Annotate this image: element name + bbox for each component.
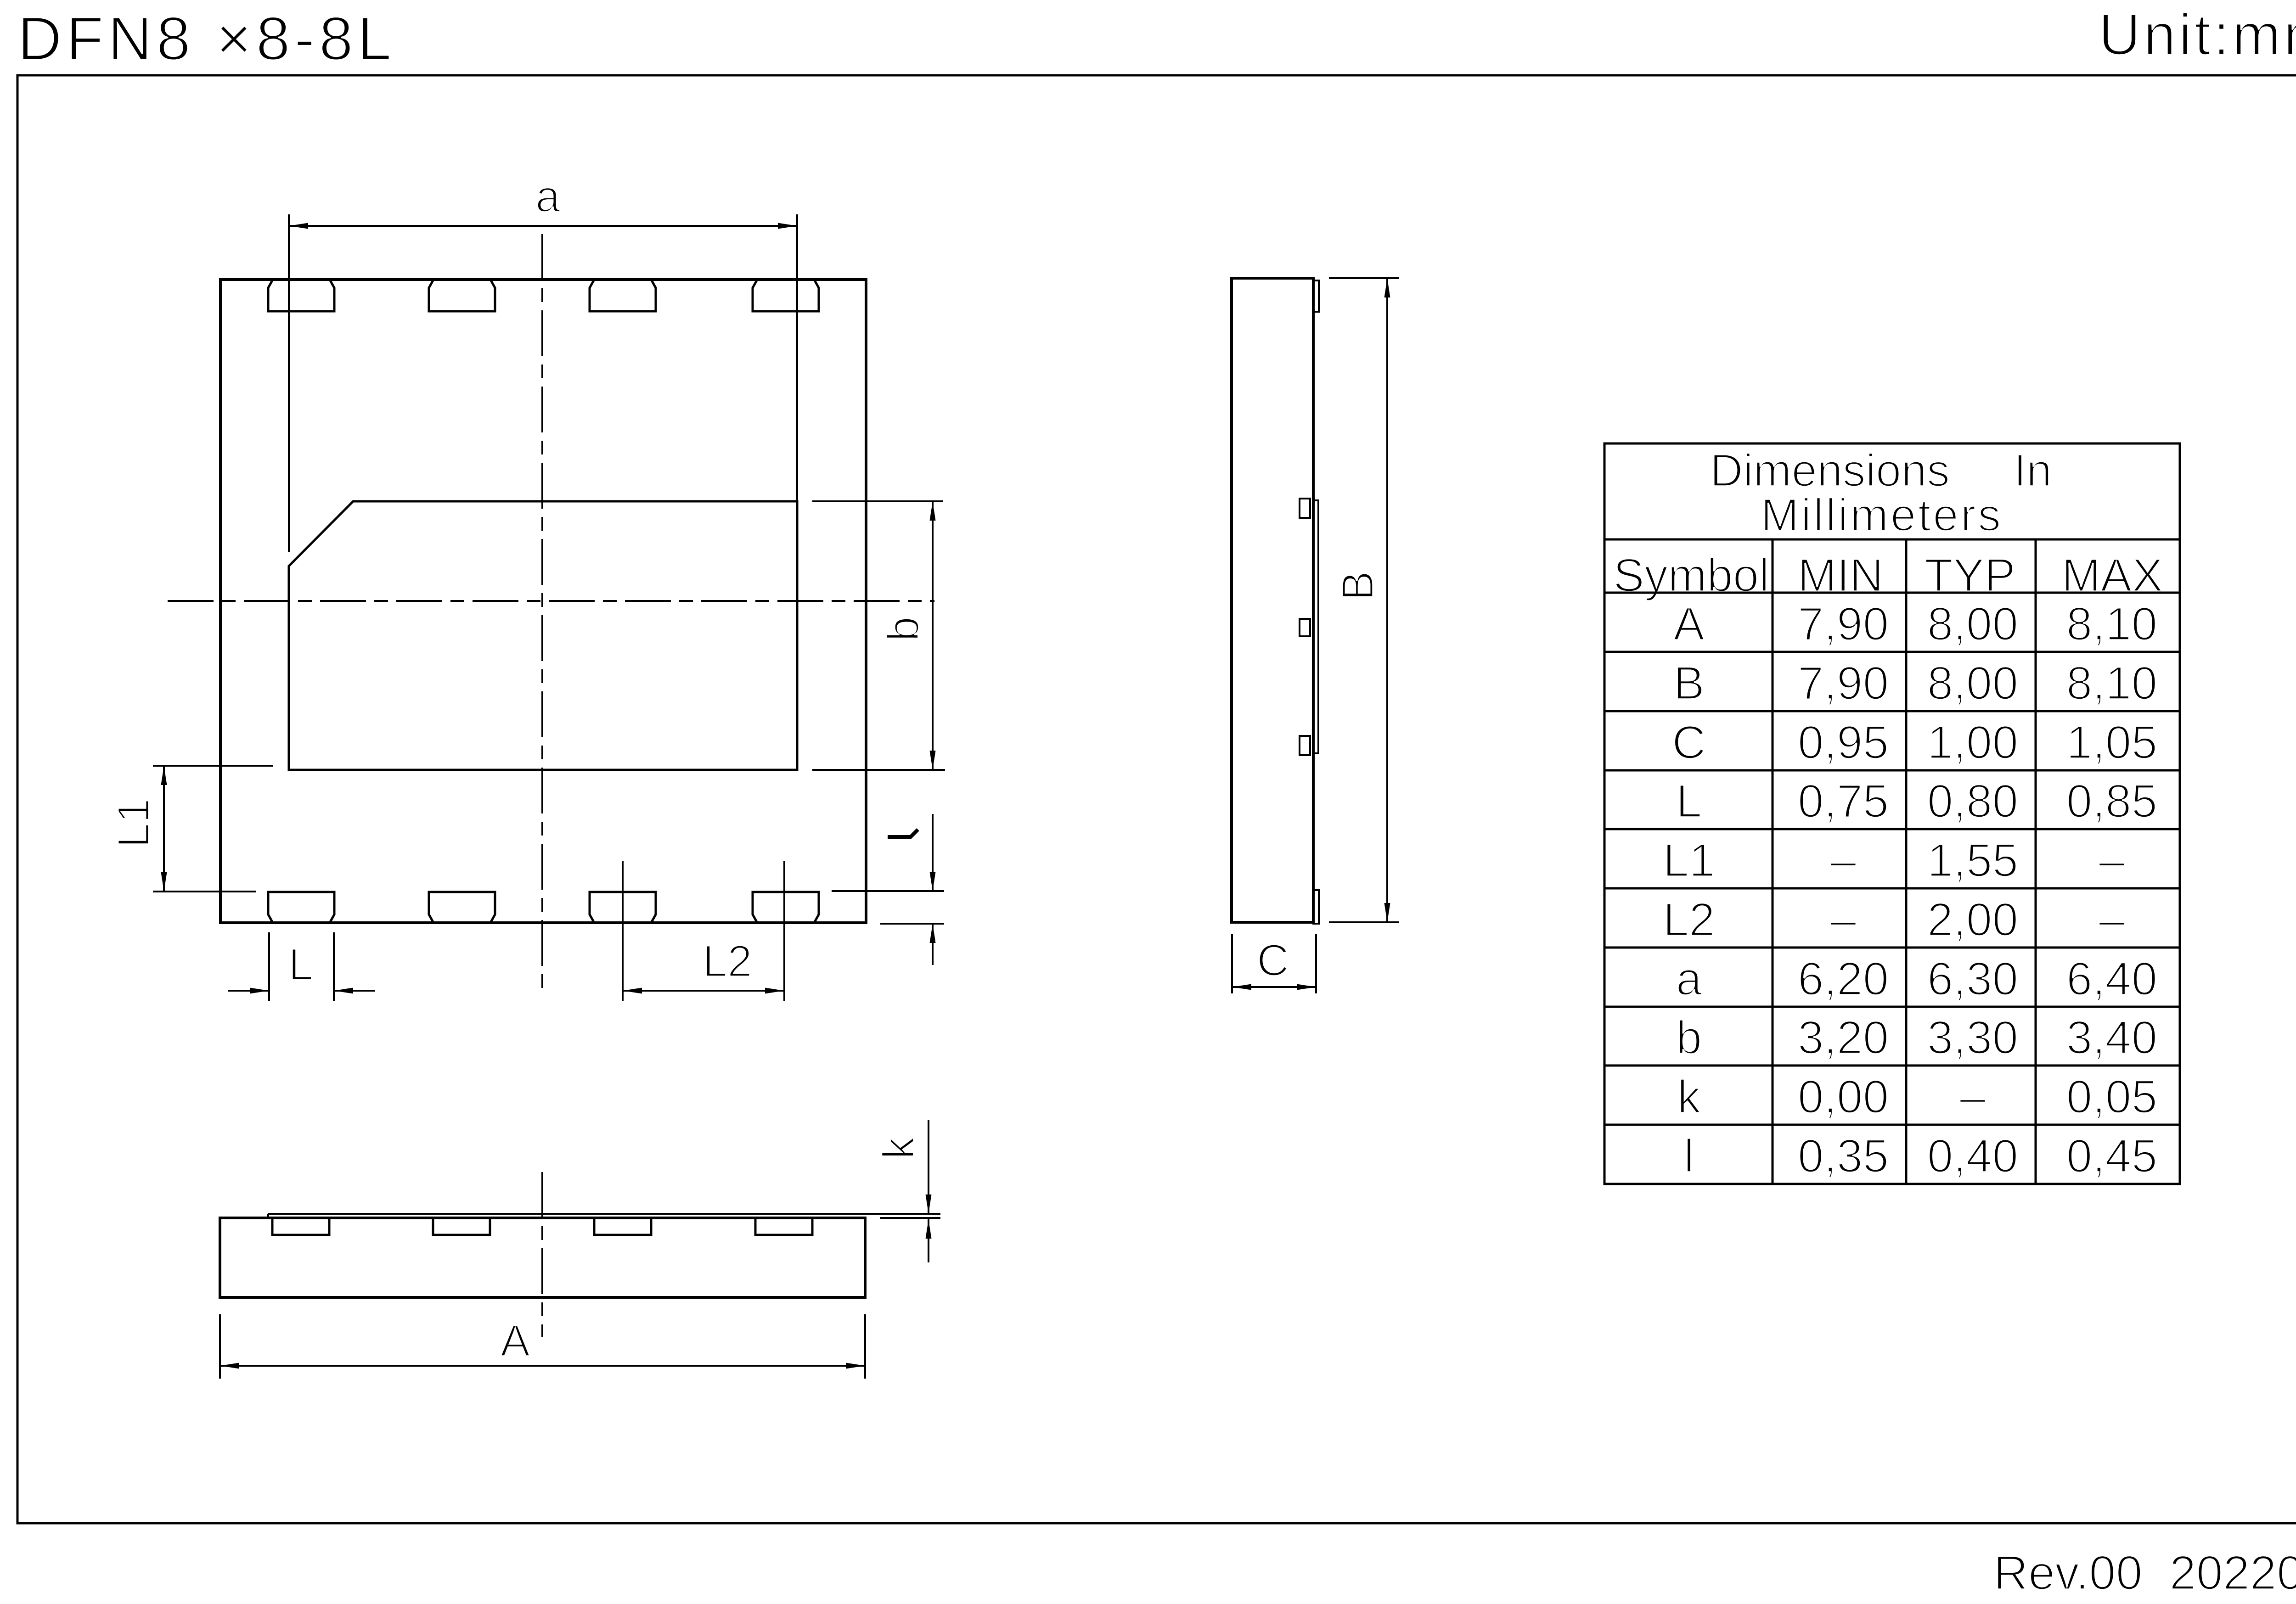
svg-text:0,80: 0,80: [1927, 775, 2019, 827]
svg-text:L2: L2: [1663, 893, 1715, 946]
svg-text:C: C: [1672, 716, 1706, 768]
svg-text:6,40: 6,40: [2066, 953, 2158, 1005]
svg-text:B: B: [1673, 657, 1705, 709]
svg-text:1,55: 1,55: [1927, 834, 2019, 886]
svg-text:k: k: [1677, 1071, 1701, 1123]
svg-text:–: –: [1960, 1071, 1986, 1123]
svg-text:7,90: 7,90: [1798, 657, 1889, 709]
svg-text:a: a: [1676, 953, 1702, 1005]
svg-text:b: b: [878, 617, 928, 641]
svg-text:0,75: 0,75: [1798, 775, 1889, 827]
svg-text:DFN8 ×8-8L: DFN8 ×8-8L: [17, 5, 396, 73]
svg-text:3,20: 3,20: [1798, 1011, 1889, 1064]
svg-text:1,00: 1,00: [1927, 716, 2019, 768]
svg-text:Rev.00 202207: Rev.00 202207: [1993, 1546, 2296, 1600]
svg-text:8,10: 8,10: [2066, 657, 2158, 709]
svg-text:–: –: [2099, 834, 2125, 886]
svg-text:6,30: 6,30: [1927, 953, 2019, 1005]
svg-text:0,45: 0,45: [2066, 1130, 2158, 1182]
svg-text:L2: L2: [703, 936, 752, 986]
svg-text:L1: L1: [1663, 834, 1715, 886]
svg-text:b: b: [1676, 1011, 1702, 1064]
svg-text:l: l: [1684, 1130, 1694, 1182]
svg-text:–: –: [1830, 893, 1857, 946]
svg-text:Millimeters: Millimeters: [1761, 489, 2003, 541]
svg-text:k: k: [873, 1137, 923, 1159]
svg-text:7,90: 7,90: [1798, 598, 1889, 650]
svg-text:–: –: [1830, 834, 1857, 886]
svg-text:1,05: 1,05: [2066, 716, 2158, 768]
svg-text:A: A: [1673, 598, 1705, 650]
svg-text:–: –: [2099, 893, 2125, 946]
svg-text:0,00: 0,00: [1798, 1071, 1889, 1123]
svg-text:L: L: [288, 939, 313, 989]
svg-text:L: L: [1676, 775, 1702, 827]
svg-text:2,00: 2,00: [1927, 893, 2019, 946]
svg-text:0,85: 0,85: [2066, 775, 2158, 827]
svg-text:0,05: 0,05: [2066, 1071, 2158, 1123]
svg-text:8,10: 8,10: [2066, 598, 2158, 650]
svg-text:C: C: [1257, 935, 1289, 985]
svg-text:0,40: 0,40: [1927, 1130, 2019, 1182]
svg-text:a: a: [535, 171, 560, 221]
svg-text:Unit:mm: Unit:mm: [2099, 2, 2296, 67]
svg-text:3,40: 3,40: [2066, 1011, 2158, 1064]
svg-text:0,95: 0,95: [1798, 716, 1889, 768]
svg-text:B: B: [1333, 571, 1383, 601]
svg-text:0,35: 0,35: [1798, 1130, 1889, 1182]
svg-text:8,00: 8,00: [1927, 598, 2019, 650]
svg-text:3,30: 3,30: [1927, 1011, 2019, 1064]
svg-text:A: A: [501, 1316, 530, 1366]
svg-text:Dimensions In: Dimensions In: [1710, 445, 2052, 496]
svg-text:L1: L1: [108, 798, 158, 848]
svg-text:6,20: 6,20: [1798, 953, 1889, 1005]
svg-text:8,00: 8,00: [1927, 657, 2019, 709]
